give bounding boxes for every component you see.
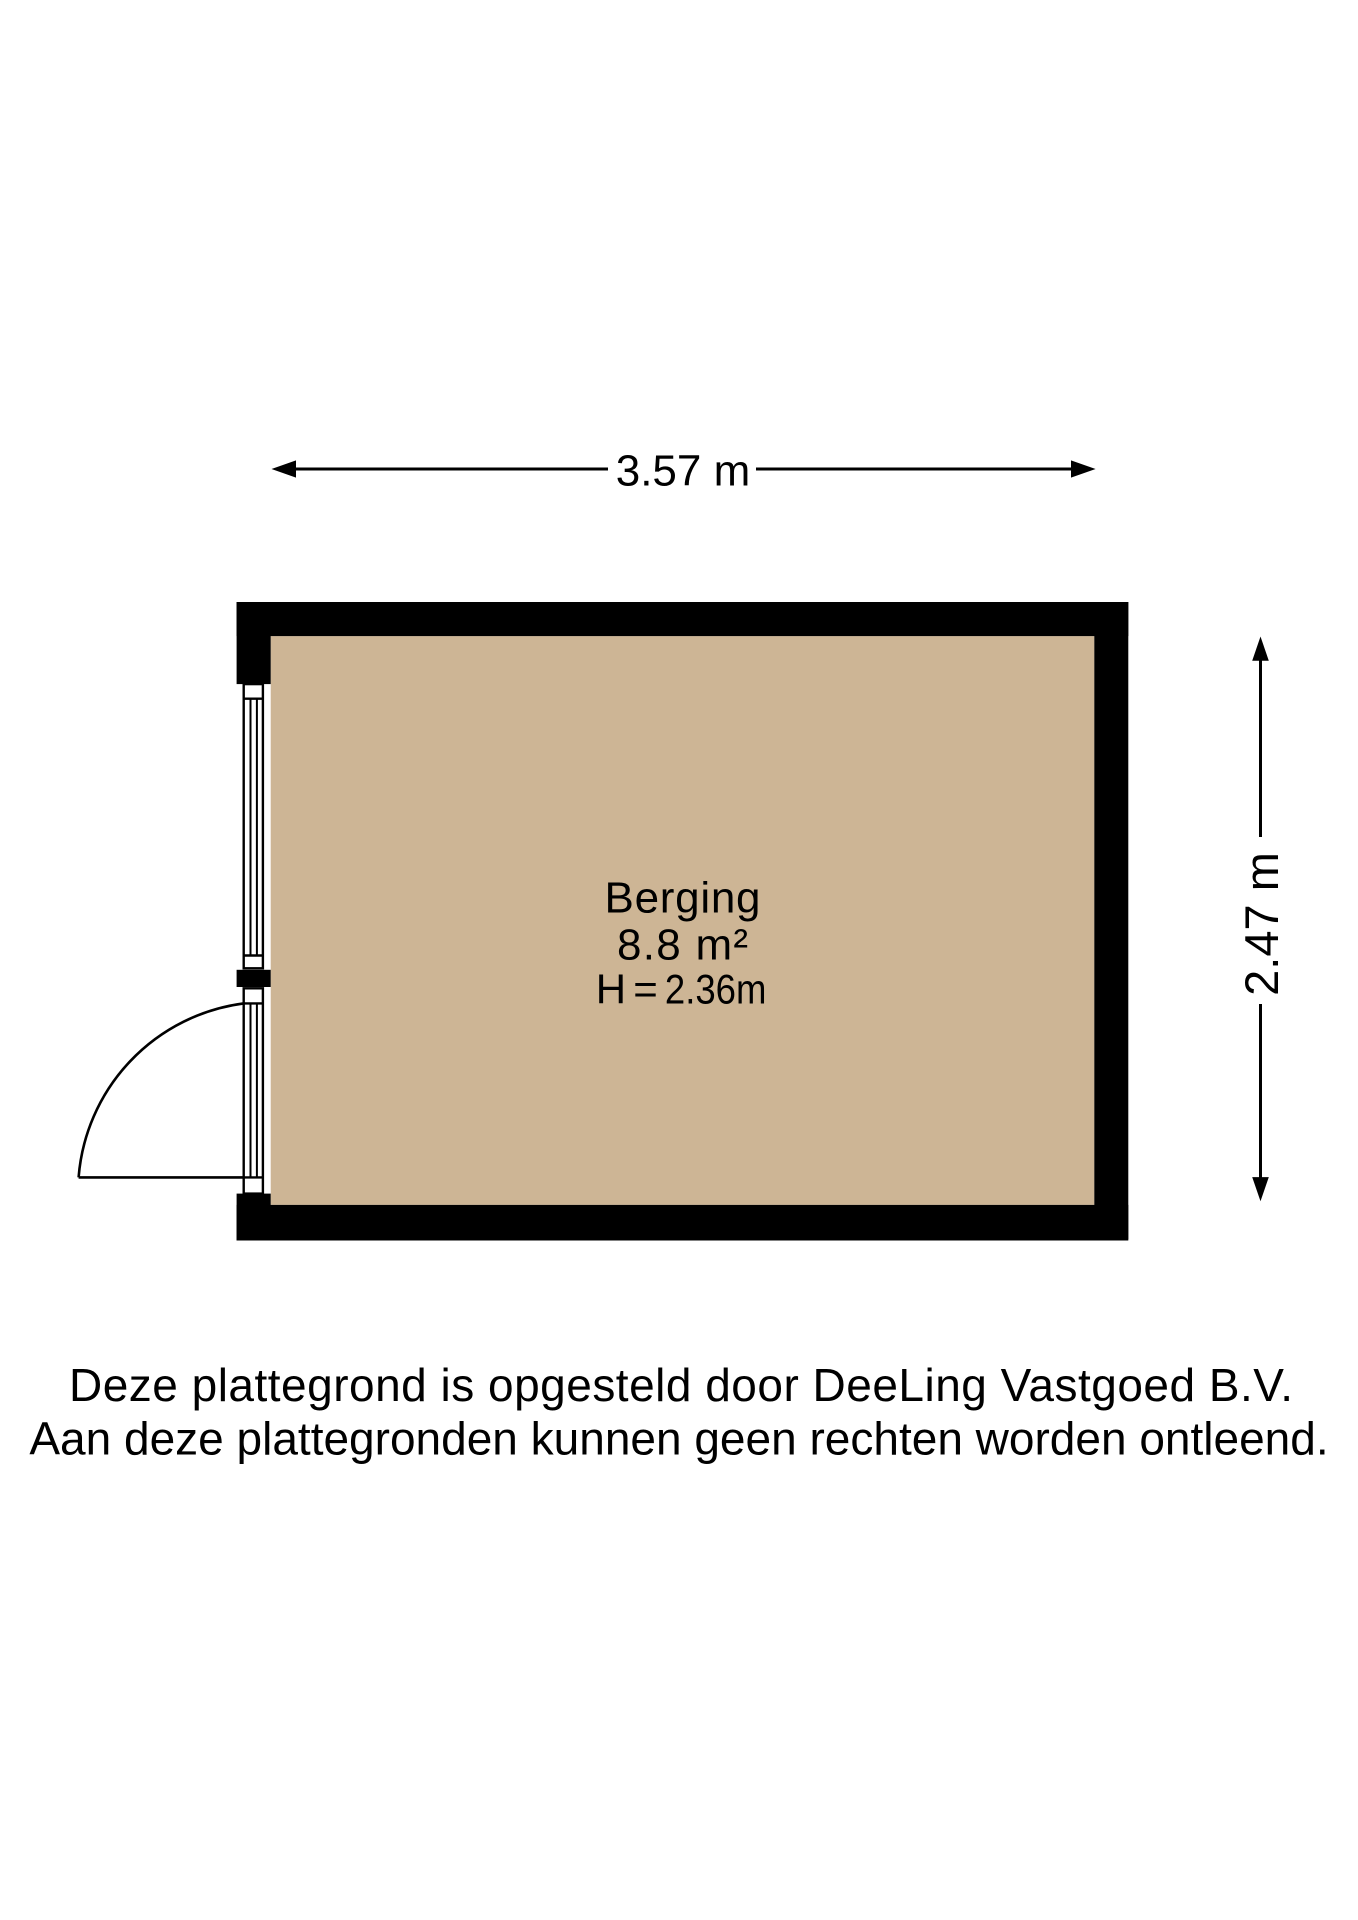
svg-text:8.8 m²: 8.8 m²: [617, 921, 748, 970]
svg-text:Aan deze plattegronden kunnen: Aan deze plattegronden kunnen geen recht…: [29, 1412, 1328, 1464]
svg-text:Berging: Berging: [605, 874, 761, 923]
svg-text:2.47 m: 2.47 m: [1235, 852, 1288, 996]
svg-text:H=2.36m: H=2.36m: [596, 966, 767, 1013]
svg-text:Deze plattegrond is opgesteld: Deze plattegrond is opgesteld door DeeLi…: [69, 1359, 1293, 1411]
svg-text:3.57 m: 3.57 m: [616, 447, 751, 496]
